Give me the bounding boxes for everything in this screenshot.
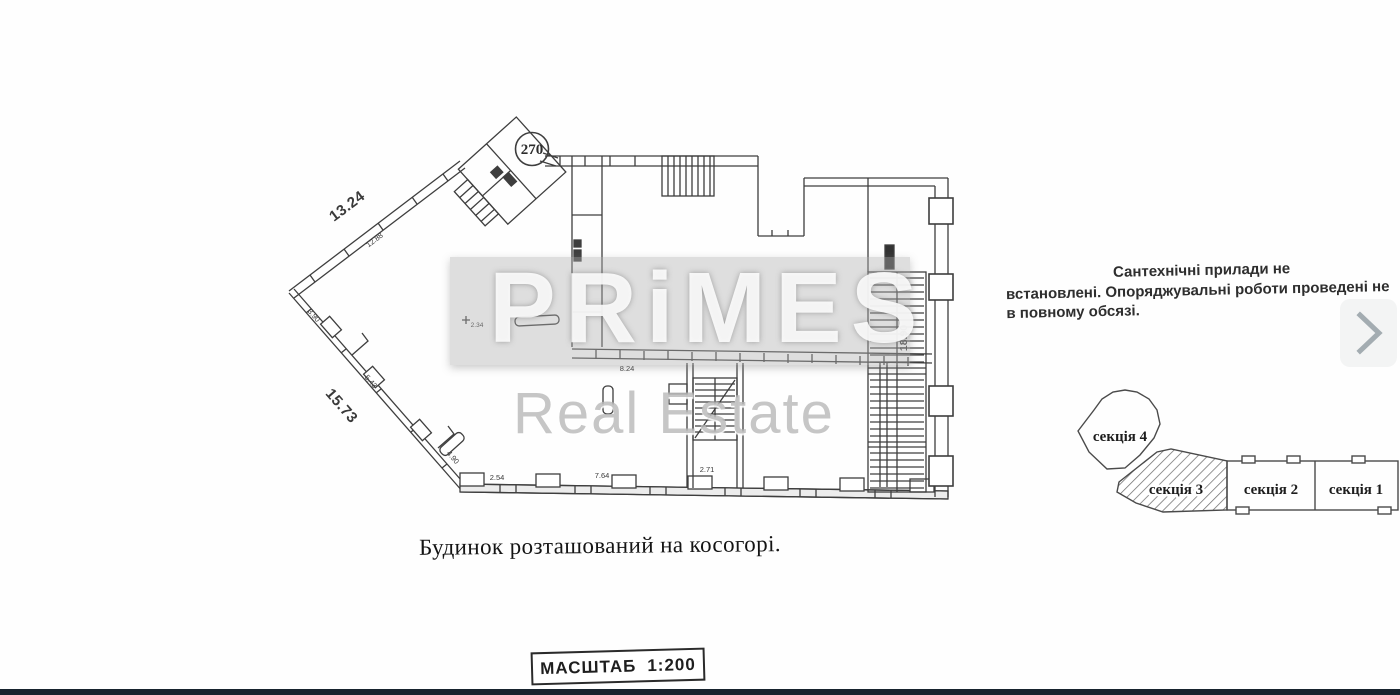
plan-caption: Будинок розташований на косогорі. [402,531,798,561]
section-key-diagram: секція 4 секція 3 секція 2 секція 1 [1078,390,1398,514]
unit-number-badge: 270 [516,133,549,166]
section-4-label: секція 4 [1093,429,1148,445]
unit-number: 270 [521,142,544,158]
entry-stair-block [445,117,566,236]
next-image-button[interactable] [1340,299,1397,367]
chevron-right-icon [1349,307,1389,359]
scale-label: МАСШТАБ [540,656,637,679]
section-1-label: секція 1 [1329,482,1383,498]
listing-photo-viewer: 270 [0,0,1400,695]
dim-left-wall: 15.73 [322,385,361,426]
watermark-brand: PRiMES [489,254,919,366]
section-2-label: секція 2 [1244,482,1298,498]
bottom-edge-bar [0,689,1400,695]
dim-bottom-seg-b: 7.64 [595,471,610,480]
dim-bottom-seg-a: 2.54 [490,473,505,482]
dim-bottom-seg-c: 2.71 [700,465,715,474]
watermark-subtitle: Real Estate [513,380,835,447]
scale-stamp: МАСШТАБ 1:200 [531,648,706,686]
dim-top-wall: 13.24 [326,187,368,225]
section-3-shape [1117,449,1227,512]
section-3-label: секція 3 [1149,482,1203,498]
dim-left-seg-a: 3.90 [306,307,322,324]
dim-top-wall-small: 12.88 [364,231,384,249]
scale-value: 1:200 [647,654,696,675]
